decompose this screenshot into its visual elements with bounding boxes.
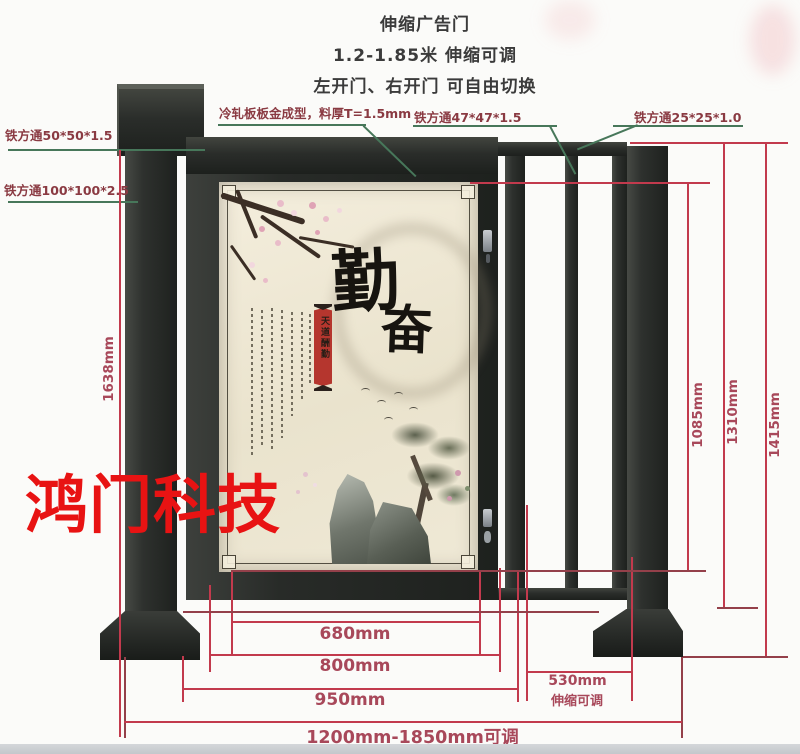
blossom xyxy=(303,472,308,477)
left-pillar-base xyxy=(100,611,200,660)
dim-line-1085 xyxy=(687,183,689,571)
blossom xyxy=(313,483,317,487)
telescopic-bar-25 xyxy=(612,156,627,590)
dim-text-1415: 1415mm xyxy=(767,385,783,465)
poem-text-column xyxy=(281,310,283,438)
dim-text-530-note: 伸缩可调 xyxy=(528,690,626,709)
frame-corner-ornament xyxy=(222,555,236,569)
dim-text-1085: 1085mm xyxy=(690,375,706,455)
dim-tick xyxy=(517,570,519,702)
dim-tick xyxy=(681,657,683,738)
seal-ribbon: 天道酬勤 xyxy=(314,308,332,386)
poem-text-column xyxy=(261,310,263,446)
seal-text: 天道酬勤 xyxy=(318,316,331,360)
dim-text-1310: 1310mm xyxy=(725,372,741,452)
dim-text-800: 800mm xyxy=(280,656,430,676)
right-pillar-base xyxy=(593,609,683,657)
dim-extension-1415-bottom xyxy=(683,656,788,658)
leader-line-coldrolled xyxy=(218,124,366,126)
door-top-rail xyxy=(186,137,498,174)
dim-line-1638 xyxy=(119,150,121,737)
dim-tick xyxy=(631,557,633,701)
poem-text-column xyxy=(291,312,293,416)
lock-plate xyxy=(483,509,492,527)
dim-tick xyxy=(499,568,501,672)
hinge-plate-top xyxy=(483,230,492,252)
dim-line-680 xyxy=(231,621,480,623)
heading-line-2: 1.2-1.85米 伸缩可调 xyxy=(280,41,570,66)
blossom xyxy=(263,278,268,283)
blossom xyxy=(315,230,320,235)
blossom xyxy=(249,262,255,268)
poem-text-column xyxy=(251,308,253,456)
label-coldrolled: 冷轧板板金成型，料厚T=1.5mm xyxy=(219,103,411,122)
heading-line-1: 伸缩广告门 xyxy=(300,10,550,35)
dim-extension-1085-top xyxy=(470,182,710,184)
dim-extension-rail-bottom xyxy=(231,570,706,572)
leader-line-tube50 xyxy=(8,149,205,151)
bird-mark xyxy=(409,407,418,413)
bird-mark xyxy=(394,392,403,398)
dim-tick xyxy=(209,585,211,672)
dim-text-1638: 1638mm xyxy=(101,329,117,409)
dim-extension-1310-bottom xyxy=(717,607,758,609)
blossom xyxy=(291,210,297,216)
calligraphy-fen: 奋 xyxy=(380,287,435,364)
product-diagram: 伸缩广告门 1.2-1.85米 伸缩可调 左开门、右开门 可自由切换 xyxy=(0,0,800,754)
photo-edge-band xyxy=(0,744,800,754)
dim-tick xyxy=(479,570,481,656)
frame-corner-ornament xyxy=(461,185,475,199)
label-tube47: 铁方通47*47*1.5 xyxy=(414,107,522,126)
blossom xyxy=(259,226,265,232)
telescopic-bar-47 xyxy=(505,156,525,590)
blossom xyxy=(337,208,342,213)
pink-smudge xyxy=(545,0,595,40)
telescopic-bar-25 xyxy=(565,156,578,590)
blossom xyxy=(309,202,316,209)
dim-text-680: 680mm xyxy=(280,624,430,644)
label-tube25: 铁方通25*25*1.0 xyxy=(634,107,742,126)
label-tube100: 铁方通100*100*2.5 xyxy=(4,180,129,199)
poem-text-column xyxy=(309,314,311,384)
poem-text-column xyxy=(301,312,303,400)
frame-corner-ornament xyxy=(461,555,475,569)
pink-smudge xyxy=(750,5,795,75)
dim-text-530: 530mm xyxy=(530,673,625,689)
blossom xyxy=(277,200,284,207)
blossom xyxy=(323,216,329,222)
hinge-pin xyxy=(486,254,490,263)
dim-tick xyxy=(231,570,233,656)
watermark-text: 鸿门科技 xyxy=(25,455,281,546)
dim-tick xyxy=(182,656,184,702)
foliage-accent xyxy=(447,496,452,501)
bird-mark xyxy=(377,400,386,406)
dim-extension-ground xyxy=(183,611,599,613)
foliage-accent xyxy=(465,486,470,491)
dim-text-950: 950mm xyxy=(275,690,425,710)
label-tube50: 铁方通50*50*1.5 xyxy=(5,125,113,144)
dim-extension-top-right xyxy=(630,142,788,144)
heading-line-3: 左开门、右开门 可自由切换 xyxy=(255,72,595,97)
dim-tick xyxy=(124,657,126,738)
dim-line-range xyxy=(124,721,682,723)
bird-mark xyxy=(361,388,370,394)
tree-foliage xyxy=(424,434,474,462)
lock-knob xyxy=(484,531,491,543)
right-pillar xyxy=(627,146,668,628)
blossom xyxy=(296,490,300,494)
bird-mark xyxy=(384,417,393,423)
poem-text-column xyxy=(271,308,273,450)
blossom xyxy=(275,240,281,246)
foliage-accent xyxy=(455,470,461,476)
